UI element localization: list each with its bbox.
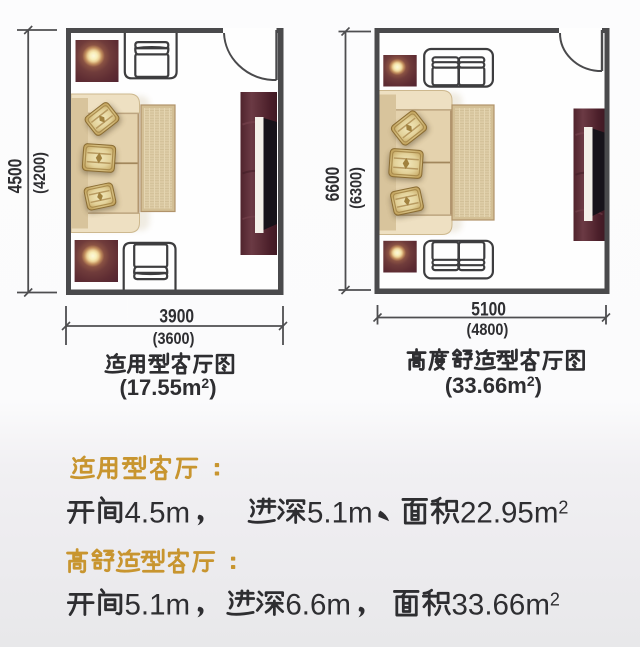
svg-text:5100: 5100 <box>471 298 506 320</box>
svg-text:4.5m: 4.5m <box>125 497 191 530</box>
svg-text:22.95m2: 22.95m2 <box>460 497 568 530</box>
svg-text:4500: 4500 <box>4 159 26 194</box>
svg-text:3900: 3900 <box>159 305 194 327</box>
svg-text:(4200): (4200) <box>31 152 49 194</box>
svg-text:(6300): (6300) <box>347 167 365 209</box>
svg-text:(3600): (3600) <box>153 330 195 348</box>
svg-text:33.66m2: 33.66m2 <box>452 589 560 622</box>
svg-text:(4800): (4800) <box>467 321 509 339</box>
svg-text:6600: 6600 <box>322 167 344 202</box>
svg-text:6.6m: 6.6m <box>285 589 351 622</box>
svg-text:5.1m: 5.1m <box>125 589 191 622</box>
svg-text:5.1m: 5.1m <box>307 497 373 530</box>
